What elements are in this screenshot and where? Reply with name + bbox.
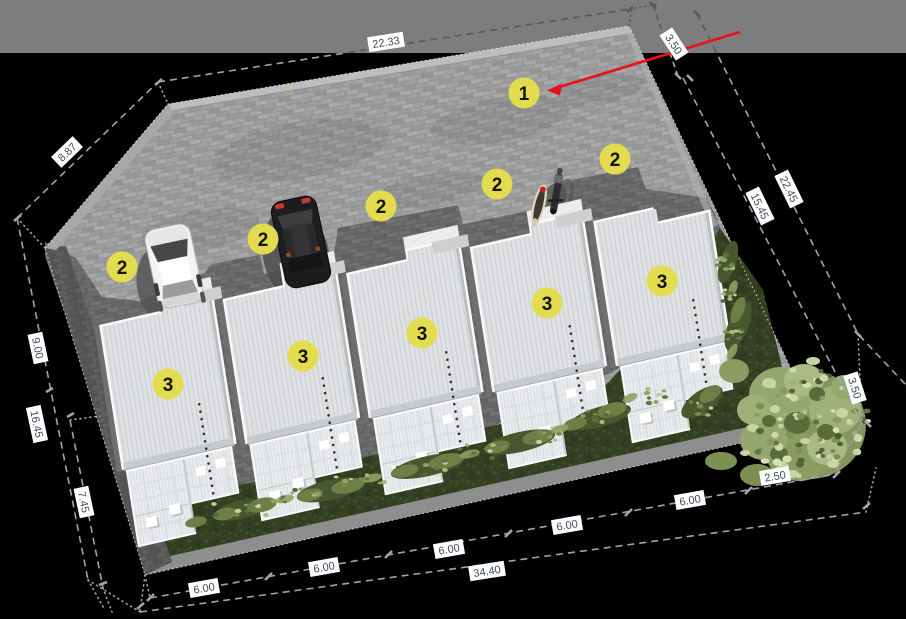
- svg-text:2: 2: [376, 197, 387, 218]
- svg-text:3: 3: [298, 347, 309, 368]
- svg-text:3: 3: [657, 272, 668, 293]
- svg-text:2: 2: [610, 150, 621, 171]
- svg-text:1: 1: [519, 84, 530, 105]
- svg-text:2: 2: [117, 258, 128, 279]
- svg-text:2: 2: [258, 230, 269, 251]
- svg-text:3: 3: [542, 294, 553, 315]
- svg-text:3: 3: [417, 324, 428, 345]
- svg-text:3: 3: [163, 375, 174, 396]
- svg-text:2: 2: [492, 175, 503, 196]
